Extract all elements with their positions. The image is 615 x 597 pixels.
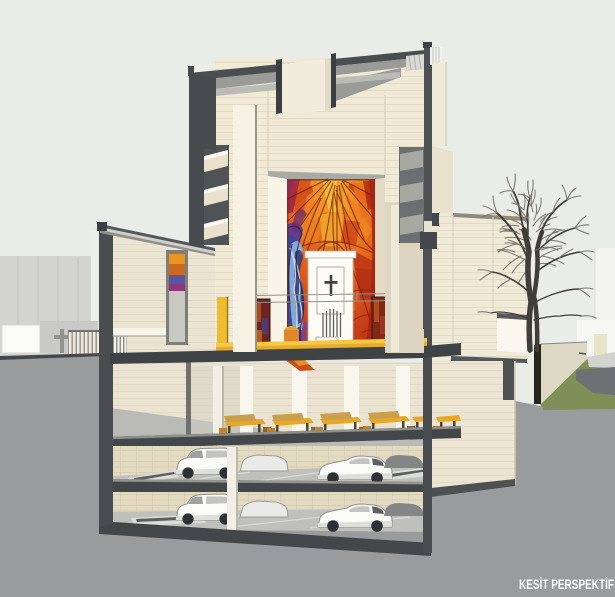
svg-text:KESİT PERSPEKTİF: KESİT PERSPEKTİF xyxy=(519,577,614,592)
